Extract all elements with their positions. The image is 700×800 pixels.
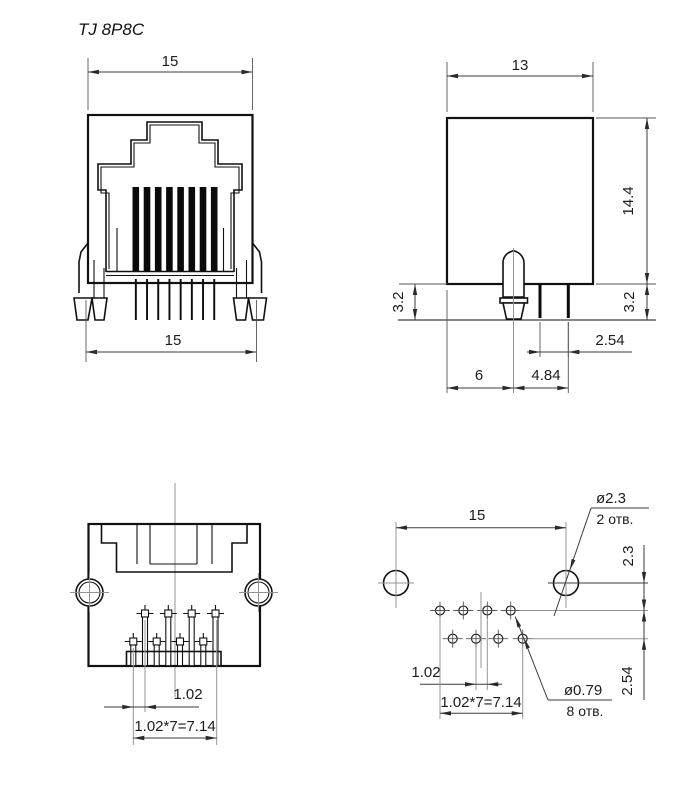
drawing-page: TJ 8P8C	[0, 0, 700, 800]
pcb-peg-hole-count-label: 2 отв.	[597, 511, 634, 527]
pcb-dim-rows: 2.3 2.54	[619, 545, 646, 700]
pcb-dim-peg-to-row-label: 2.3	[620, 546, 637, 567]
side-dim-width-label: 13	[512, 57, 529, 74]
side-dim-peg-to-pin-label: 4.84	[531, 367, 560, 384]
bottom-latch-cavity	[102, 525, 248, 572]
pcb-pin-holes-top-row	[430, 602, 521, 620]
bottom-view: 1.02 1.02*7=7.14	[70, 483, 278, 745]
side-dim-width: 13	[447, 57, 593, 112]
front-dim-width-bottom: 15	[86, 300, 257, 362]
pcb-view: 15 2.3 2.54	[378, 490, 649, 719]
side-dim-pin-right: 3.2	[621, 284, 649, 320]
front-left-wing	[74, 243, 107, 320]
bottom-dim-offset-label: 1.02	[173, 686, 202, 703]
front-contact-blades	[133, 187, 218, 271]
bottom-pin-comb	[127, 652, 222, 667]
front-right-wing	[234, 243, 267, 320]
pcb-peg-hole-left	[378, 522, 414, 608]
side-dim-pitch: 2.54	[527, 322, 632, 357]
drawing-title: TJ 8P8C	[78, 20, 145, 39]
pcb-pin-hole-count-label: 8 отв.	[567, 703, 604, 719]
pcb-dim-peg-spacing-label: 15	[469, 507, 486, 524]
front-dim-width-bottom-label: 15	[165, 332, 182, 349]
side-view: 13 14.4 3.2 3.2	[390, 57, 656, 393]
side-dim-height-label: 14.4	[620, 186, 637, 215]
side-dim-pitch-label: 2.54	[595, 332, 624, 349]
pcb-pin-hole-dia-label: ø0.79	[564, 682, 602, 699]
side-dim-peg-offset-label: 6	[475, 367, 483, 384]
side-dim-height: 14.4	[596, 118, 656, 284]
front-solder-pins	[135, 279, 215, 320]
side-pin-2	[567, 284, 570, 318]
side-dim-pin-left-label: 3.2	[390, 292, 407, 313]
front-dim-width-top-label: 15	[162, 53, 179, 70]
technical-drawing-canvas: TJ 8P8C	[0, 0, 700, 800]
pcb-dim-span-label: 1.02*7=7.14	[440, 694, 521, 711]
pcb-pin-hole-callout: ø0.79 8 отв.	[515, 617, 612, 720]
front-dim-width-top: 15	[88, 53, 253, 110]
pcb-dim-offset-label: 1.02	[411, 664, 440, 681]
bottom-right-peg	[239, 573, 278, 612]
side-pin-1	[539, 284, 542, 318]
bottom-left-peg	[70, 573, 109, 612]
side-dim-pin-left: 3.2	[390, 284, 447, 320]
pcb-dim-row-pitch-label: 2.54	[619, 666, 636, 695]
bottom-body-outline	[89, 524, 261, 666]
side-dim-pin-right-label: 3.2	[621, 292, 638, 313]
pcb-dim-peg-spacing: 15	[396, 507, 566, 530]
bottom-dim-span-label: 1.02*7=7.14	[134, 718, 215, 735]
pcb-peg-hole-dia-label: ø2.3	[596, 490, 626, 507]
front-view: 15 15	[74, 53, 267, 362]
